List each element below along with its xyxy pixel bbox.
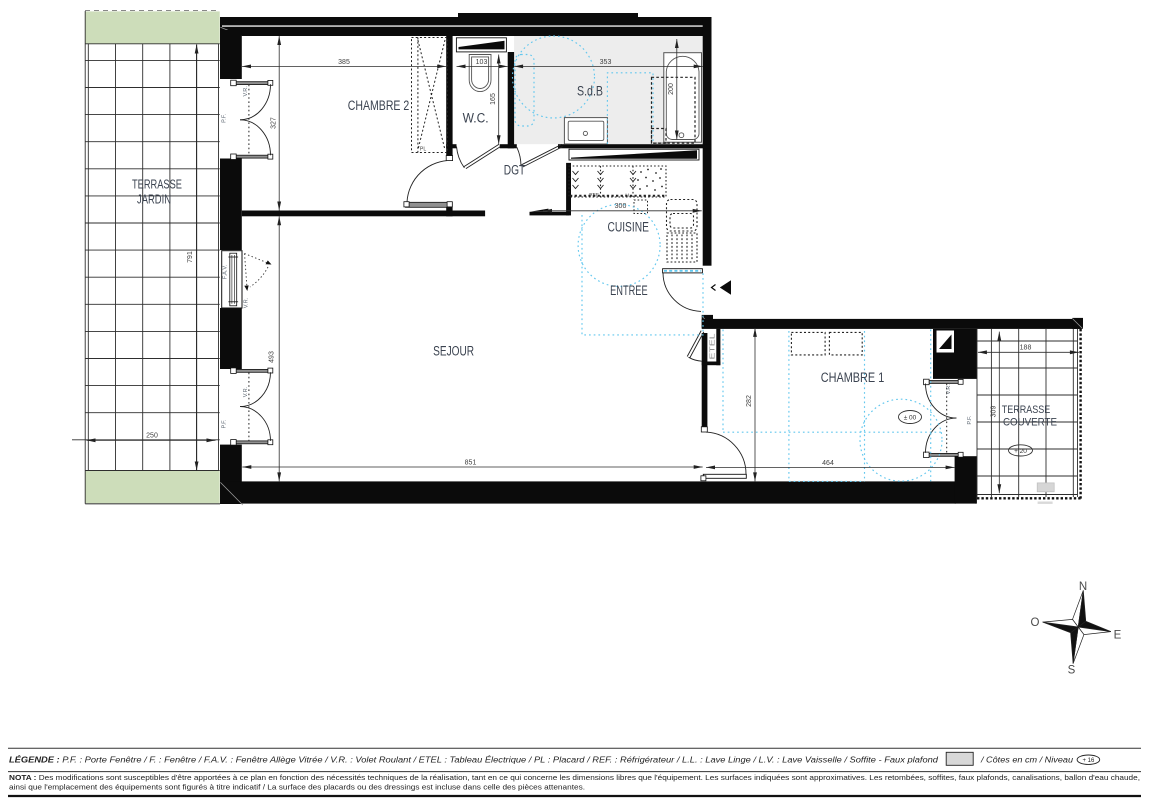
- svg-text:COUVERTE: COUVERTE: [1003, 416, 1057, 428]
- svg-text:V.R.: V.R.: [243, 86, 249, 97]
- svg-text:ENTREE: ENTREE: [610, 283, 648, 298]
- svg-text:NOTA : Des modifications sont: NOTA : Des modifications sont susceptibl…: [9, 773, 1140, 782]
- svg-text:S: S: [1068, 665, 1076, 677]
- svg-text:V.R.: V.R.: [946, 384, 952, 395]
- svg-text:493: 493: [269, 351, 276, 363]
- svg-text:F.A.V.: F.A.V.: [223, 264, 229, 279]
- svg-text:309: 309: [990, 406, 997, 418]
- svg-text:TERRASSE: TERRASSE: [1002, 404, 1051, 416]
- svg-text:SEJOUR: SEJOUR: [433, 344, 474, 359]
- svg-text:P.F.: P.F.: [967, 415, 973, 424]
- svg-text:CHAMBRE 1: CHAMBRE 1: [821, 370, 885, 385]
- svg-text:791: 791: [187, 251, 194, 263]
- svg-text:E: E: [1114, 630, 1122, 642]
- svg-text:851: 851: [465, 459, 477, 466]
- svg-text:N: N: [1079, 581, 1087, 593]
- svg-text:LL: LL: [625, 192, 631, 198]
- svg-text:200: 200: [668, 83, 675, 95]
- svg-text:+ 20: + 20: [1014, 448, 1027, 455]
- svg-text:TERRASSE: TERRASSE: [132, 178, 182, 192]
- svg-text:S.d.B: S.d.B: [577, 83, 603, 98]
- svg-text:385: 385: [338, 59, 350, 66]
- svg-text:ETEL: ETEL: [707, 334, 716, 360]
- svg-text:250: 250: [146, 433, 158, 440]
- svg-text:ainsi que l'emplacement des éq: ainsi que l'emplacement des équipements …: [9, 782, 585, 791]
- svg-text:P.F.: P.F.: [221, 114, 227, 123]
- svg-text:V.R.: V.R.: [243, 386, 249, 397]
- svg-text:P.F.: P.F.: [221, 419, 227, 428]
- svg-text:327: 327: [271, 117, 278, 129]
- svg-text:REF: REF: [589, 192, 599, 198]
- svg-text:282: 282: [746, 395, 753, 407]
- svg-text:CHAMBRE 2: CHAMBRE 2: [348, 98, 410, 113]
- svg-text:464: 464: [822, 460, 834, 467]
- svg-text:W.C.: W.C.: [463, 110, 489, 125]
- svg-text:188: 188: [1020, 345, 1032, 352]
- svg-text:± 00: ± 00: [904, 415, 917, 422]
- svg-text:/ Côtes en cm / Niveau: / Côtes en cm / Niveau: [980, 755, 1073, 765]
- svg-text:DGT: DGT: [504, 163, 526, 178]
- svg-text:165: 165: [490, 93, 497, 105]
- svg-text:CUISINE: CUISINE: [607, 220, 649, 235]
- svg-text:V.R.: V.R.: [244, 297, 250, 308]
- svg-text:PL: PL: [420, 146, 426, 152]
- svg-text:300: 300: [615, 203, 627, 210]
- svg-text:O: O: [1031, 617, 1040, 629]
- svg-text:103: 103: [476, 59, 488, 66]
- svg-text:+ 16: + 16: [1082, 758, 1095, 764]
- svg-text:JARDIN: JARDIN: [137, 193, 171, 207]
- svg-text:LÉGENDE : P.F. : Porte Fenêtr: LÉGENDE : P.F. : Porte Fenêtre / F. : Fe…: [9, 755, 938, 765]
- svg-text:353: 353: [600, 59, 612, 66]
